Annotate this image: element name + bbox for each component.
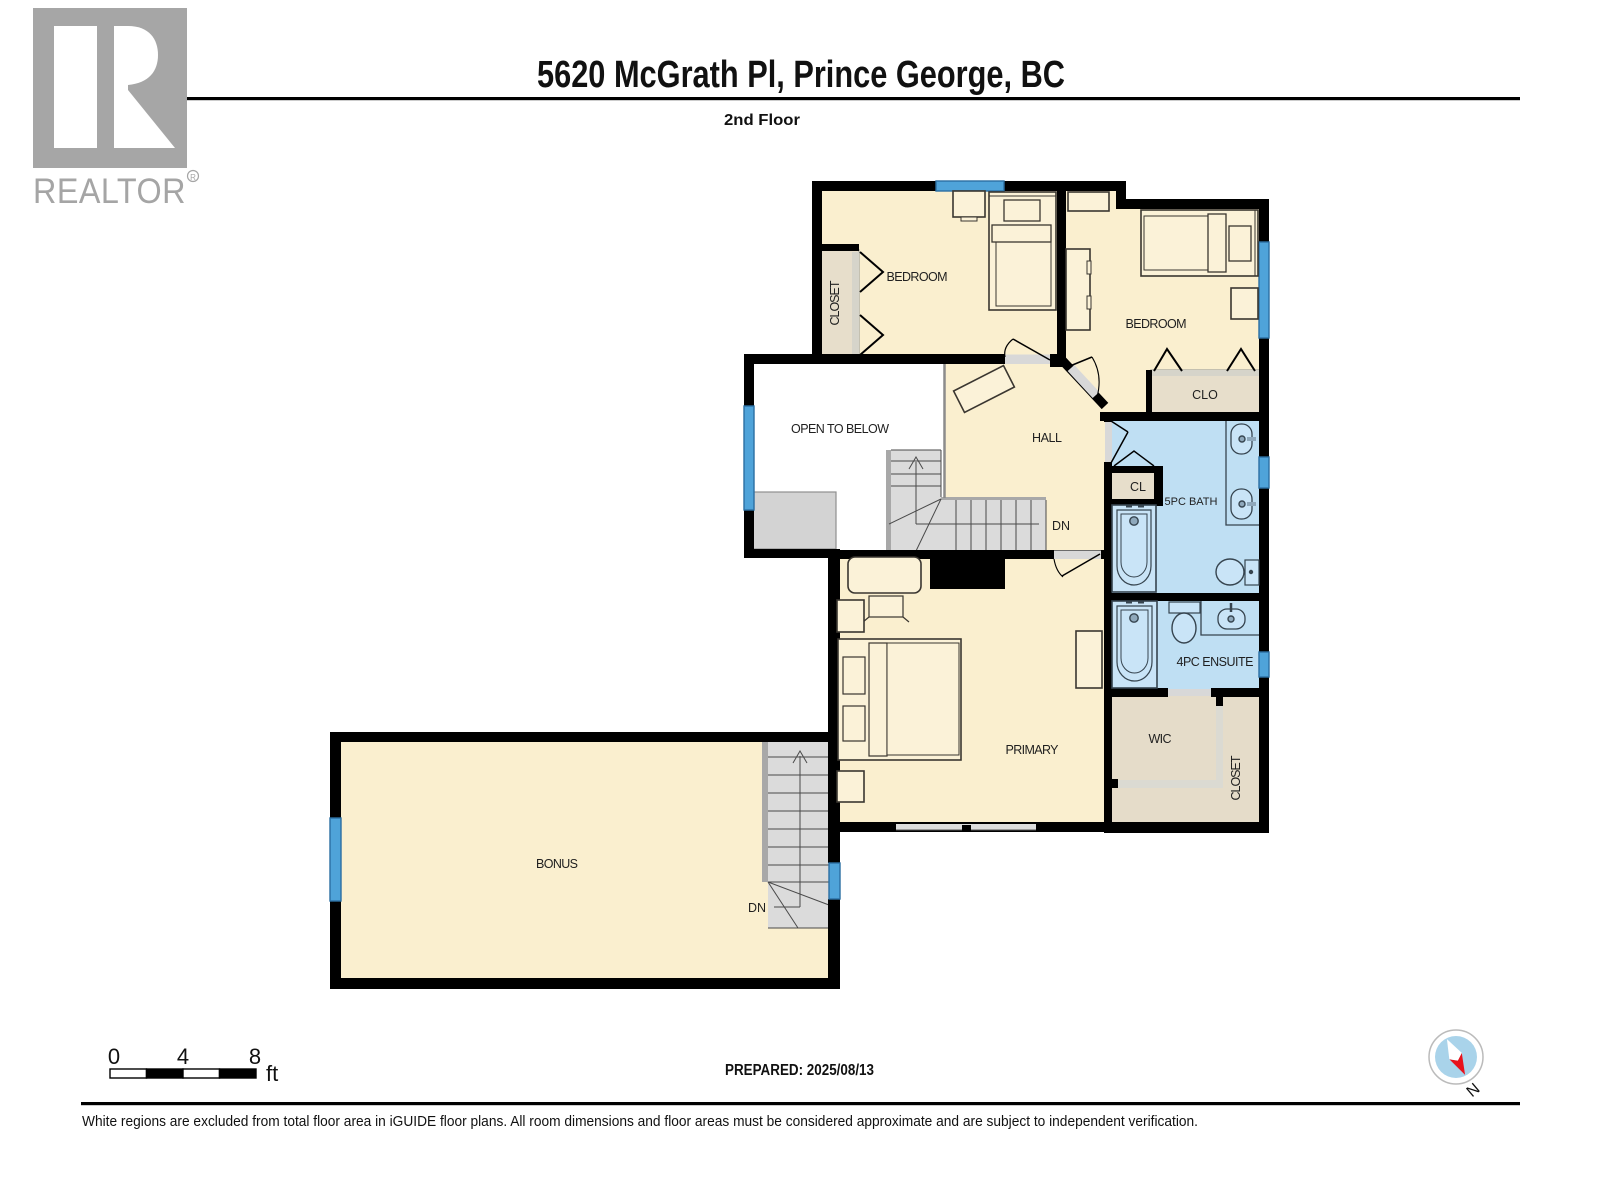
svg-text:8: 8 — [249, 1044, 261, 1069]
svg-text:CLOSET: CLOSET — [1229, 755, 1243, 800]
svg-text:DN: DN — [748, 901, 766, 915]
svg-text:2nd Floor: 2nd Floor — [724, 112, 800, 129]
svg-text:WIC: WIC — [1149, 732, 1172, 746]
svg-text:BONUS: BONUS — [536, 857, 578, 871]
svg-text:DN: DN — [1052, 519, 1070, 533]
svg-text:0: 0 — [108, 1044, 120, 1069]
svg-text:REALTOR: REALTOR — [33, 172, 186, 211]
svg-text:White regions are excluded fro: White regions are excluded from total fl… — [82, 1114, 1198, 1130]
svg-text:HALL: HALL — [1032, 431, 1062, 445]
svg-text:CLOSET: CLOSET — [828, 280, 842, 325]
svg-text:4: 4 — [177, 1044, 189, 1069]
svg-text:N: N — [1464, 1080, 1484, 1100]
svg-text:5PC BATH: 5PC BATH — [1165, 496, 1218, 508]
svg-text:PRIMARY: PRIMARY — [1006, 743, 1060, 757]
svg-text:5620 McGrath Pl, Prince George: 5620 McGrath Pl, Prince George, BC — [537, 54, 1065, 96]
svg-text:R: R — [190, 173, 196, 182]
svg-text:BEDROOM: BEDROOM — [1126, 317, 1187, 331]
svg-text:PREPARED: 2025/08/13: PREPARED: 2025/08/13 — [725, 1062, 874, 1079]
svg-text:OPEN TO BELOW: OPEN TO BELOW — [791, 422, 889, 436]
svg-text:ft: ft — [266, 1061, 278, 1086]
svg-text:4PC ENSUITE: 4PC ENSUITE — [1177, 655, 1254, 669]
svg-text:CL: CL — [1130, 480, 1146, 494]
svg-text:BEDROOM: BEDROOM — [887, 270, 948, 284]
svg-text:CLO: CLO — [1192, 388, 1218, 402]
